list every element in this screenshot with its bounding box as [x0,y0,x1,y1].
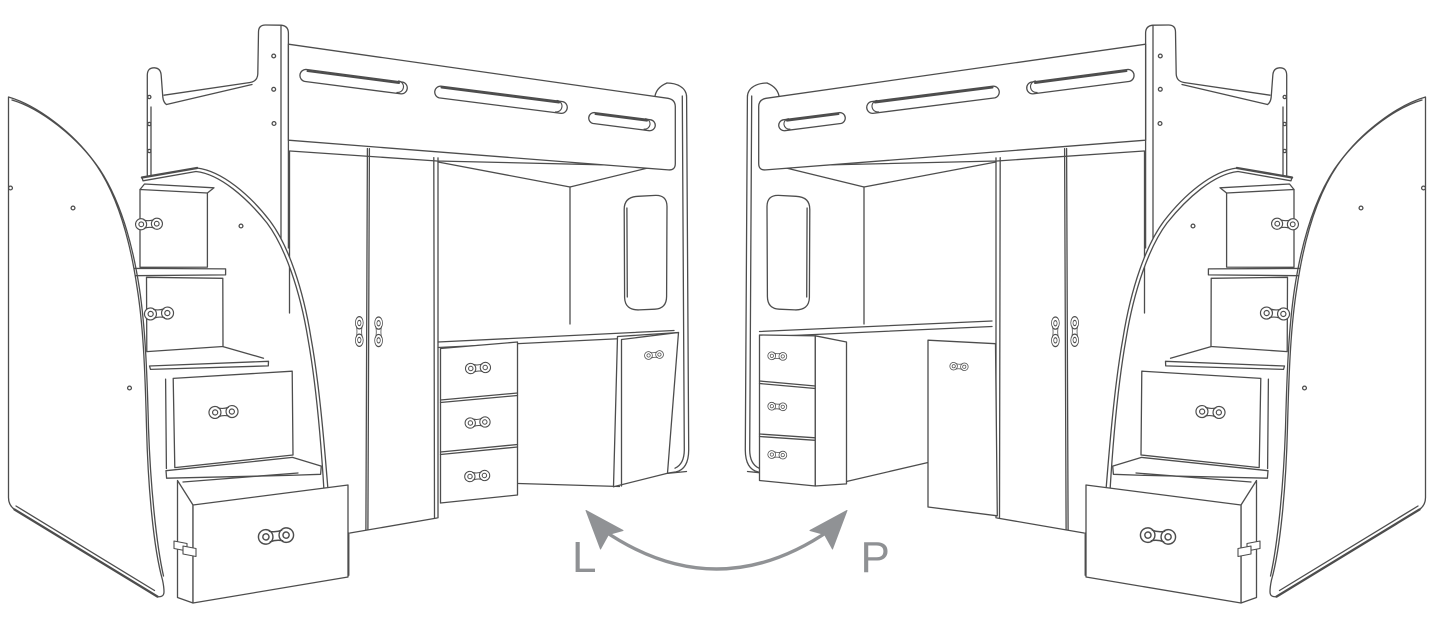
svg-text:P: P [861,533,890,582]
svg-text:L: L [572,533,596,582]
